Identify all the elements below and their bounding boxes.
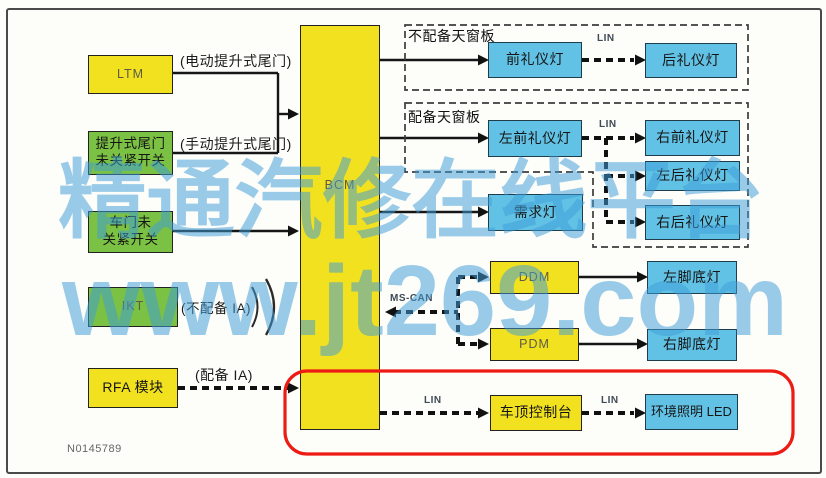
figure-number: N0145789 — [67, 443, 122, 455]
node-rfa-label: RFA 模块 — [102, 379, 163, 397]
node-liftgate-ajar-switch: 提升式尾门 未关紧开关 — [88, 131, 173, 175]
node-bcm: BCM — [300, 25, 380, 430]
node-pdm: PDM — [490, 328, 579, 361]
node-rear-courtesy-lamp: 后礼仪灯 — [645, 43, 737, 78]
node-lf-courtesy-label: 左前礼仪灯 — [499, 130, 572, 148]
node-ddm: DDM — [490, 261, 579, 294]
node-ltm: LTM — [88, 55, 173, 94]
bus-label-lin-bottom-right: LIN — [601, 395, 619, 406]
node-right-front-courtesy-lamp: 右前礼仪灯 — [645, 120, 740, 156]
node-ltm-label: LTM — [117, 67, 144, 83]
node-left-rear-courtesy-lamp: 左后礼仪灯 — [645, 161, 740, 191]
node-bcm-label: BCM — [325, 178, 356, 194]
annotation-power-liftgate: (电动提升式尾门) — [180, 51, 292, 71]
bus-label-lin-bottom-left: LIN — [424, 395, 442, 406]
node-left-front-courtesy-lamp: 左前礼仪灯 — [488, 120, 582, 157]
annotation-with-ia: (配备 IA) — [195, 365, 253, 385]
diagram-canvas: LTM 提升式尾门 未关紧开关 车门未 关紧开关 IKT RFA 模块 BCM … — [0, 0, 826, 478]
node-front-courtesy-label: 前礼仪灯 — [506, 51, 564, 69]
node-rr-courtesy-label: 右后礼仪灯 — [656, 214, 729, 232]
group-label-sunroof: 配备天窗板 — [408, 107, 481, 127]
node-ambient-led-label: 环境照明 LED — [651, 404, 732, 420]
node-ikt-label: IKT — [122, 299, 144, 315]
node-roof-console: 车顶控制台 — [490, 395, 582, 431]
node-demand-lamp: 需求灯 — [488, 194, 583, 231]
node-left-footwell-lamp: 左脚底灯 — [647, 261, 737, 294]
node-door-ajar-line1: 车门未 — [110, 215, 152, 232]
node-rear-courtesy-label: 后礼仪灯 — [662, 52, 720, 70]
node-left-footwell-label: 左脚底灯 — [663, 269, 721, 287]
node-right-rear-courtesy-lamp: 右后礼仪灯 — [645, 205, 740, 240]
annotation-without-ia: (不配备 IA) — [181, 297, 251, 317]
node-pdm-label: PDM — [519, 337, 550, 353]
node-liftgate-ajar-line2: 未关紧开关 — [96, 153, 166, 170]
group-label-no-sunroof: 不配备天窗板 — [408, 26, 495, 46]
node-lr-courtesy-label: 左后礼仪灯 — [656, 167, 729, 185]
node-ddm-label: DDM — [519, 270, 550, 286]
node-door-ajar-switch: 车门未 关紧开关 — [88, 211, 173, 253]
bus-label-mscan: MS-CAN — [390, 293, 433, 304]
node-liftgate-ajar-line1: 提升式尾门 — [96, 136, 166, 153]
node-door-ajar-line2: 关紧开关 — [103, 232, 159, 249]
annotation-manual-liftgate: (手动提升式尾门) — [180, 134, 292, 154]
bus-label-lin-mid: LIN — [599, 119, 617, 130]
node-roof-console-label: 车顶控制台 — [500, 404, 573, 422]
bus-label-lin-top: LIN — [597, 33, 615, 44]
node-rf-courtesy-label: 右前礼仪灯 — [656, 129, 729, 147]
node-ambient-led: 环境照明 LED — [645, 394, 738, 430]
node-right-footwell-label: 右脚底灯 — [663, 336, 721, 354]
node-right-footwell-lamp: 右脚底灯 — [647, 329, 737, 361]
node-demand-lamp-label: 需求灯 — [514, 204, 558, 222]
node-front-courtesy-lamp: 前礼仪灯 — [488, 42, 582, 78]
node-ikt: IKT — [88, 287, 178, 327]
node-rfa-module: RFA 模块 — [88, 368, 178, 408]
